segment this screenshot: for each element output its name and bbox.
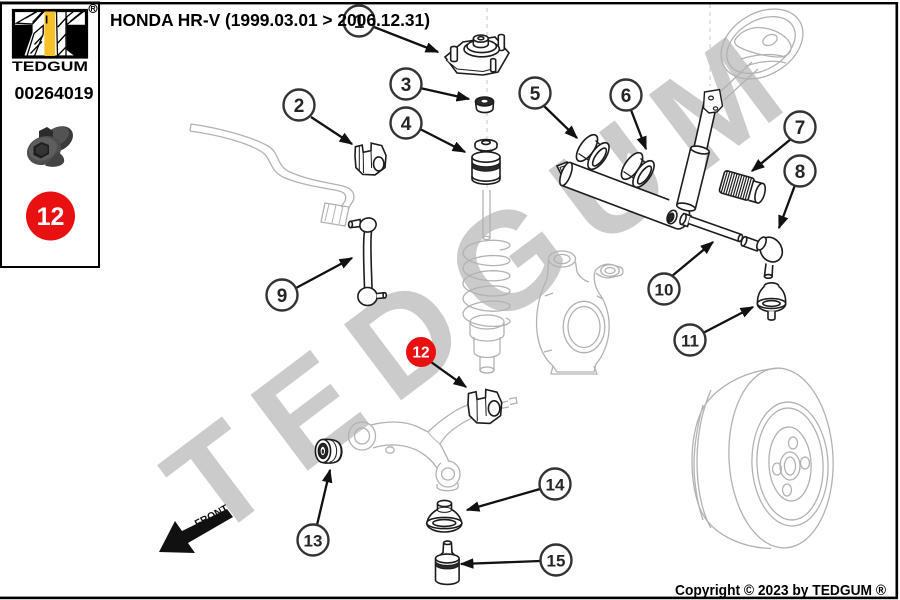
svg-text:7: 7 (795, 118, 806, 139)
svg-text:3: 3 (401, 75, 412, 96)
svg-text:13: 13 (304, 532, 323, 551)
svg-text:HONDA HR-V (1999.03.01 > 2006: HONDA HR-V (1999.03.01 > 2006.12.31) (110, 10, 430, 30)
svg-text:5: 5 (530, 84, 541, 105)
svg-text:Copyright © 2023 by TEDGUM ®: Copyright © 2023 by TEDGUM ® (675, 582, 886, 599)
svg-text:14: 14 (546, 476, 565, 495)
svg-text:11: 11 (681, 332, 699, 351)
svg-text:6: 6 (621, 86, 632, 107)
svg-text:4: 4 (401, 114, 412, 135)
svg-text:12: 12 (37, 203, 65, 231)
svg-text:TEDGUM: TEDGUM (12, 58, 88, 74)
svg-text:2: 2 (294, 96, 305, 117)
svg-text:10: 10 (655, 281, 674, 300)
svg-text:R: R (90, 6, 95, 13)
svg-text:15: 15 (547, 552, 566, 571)
svg-text:8: 8 (795, 162, 806, 183)
svg-text:00264019: 00264019 (15, 83, 94, 103)
svg-text:9: 9 (277, 286, 288, 307)
svg-text:12: 12 (412, 345, 429, 362)
